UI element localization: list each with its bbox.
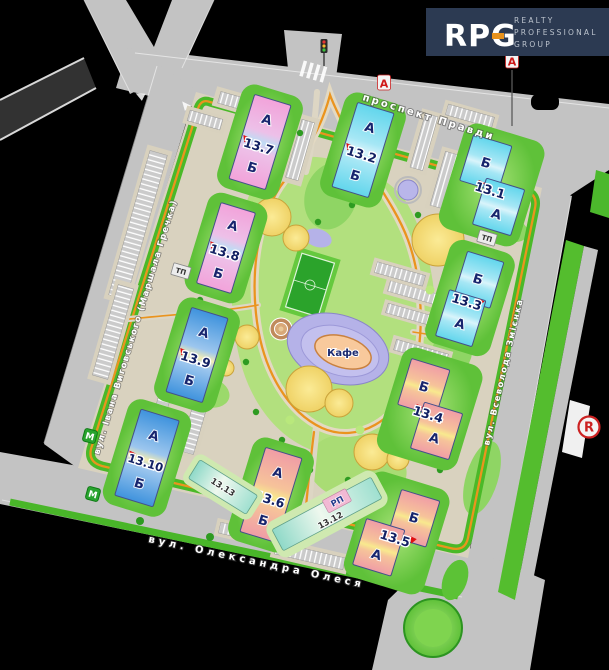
site-plan-map: Кафе А 13.: [0, 0, 609, 670]
svg-text:А: А: [380, 78, 389, 91]
logo-word: PROFESSIONAL: [514, 28, 598, 37]
small-pond: [395, 177, 421, 203]
logo-word: REALTY: [514, 16, 555, 25]
transport-stop-marker: А: [378, 75, 391, 91]
logo-monogram: RPG: [444, 19, 517, 54]
registered-trademark: R: [579, 417, 600, 438]
svg-text:А: А: [508, 56, 517, 69]
rpg-logo: RPG REALTY PROFESSIONAL GROUP: [426, 8, 609, 56]
cafe-label: Кафе: [327, 347, 359, 359]
svg-text:R: R: [584, 421, 594, 436]
logo-accent: [492, 33, 504, 39]
road-notch: [531, 94, 559, 110]
logo-word: GROUP: [514, 40, 552, 49]
metro-marker: М: [85, 486, 101, 502]
site-plan-screenshot: Кафе А 13.: [0, 0, 609, 670]
